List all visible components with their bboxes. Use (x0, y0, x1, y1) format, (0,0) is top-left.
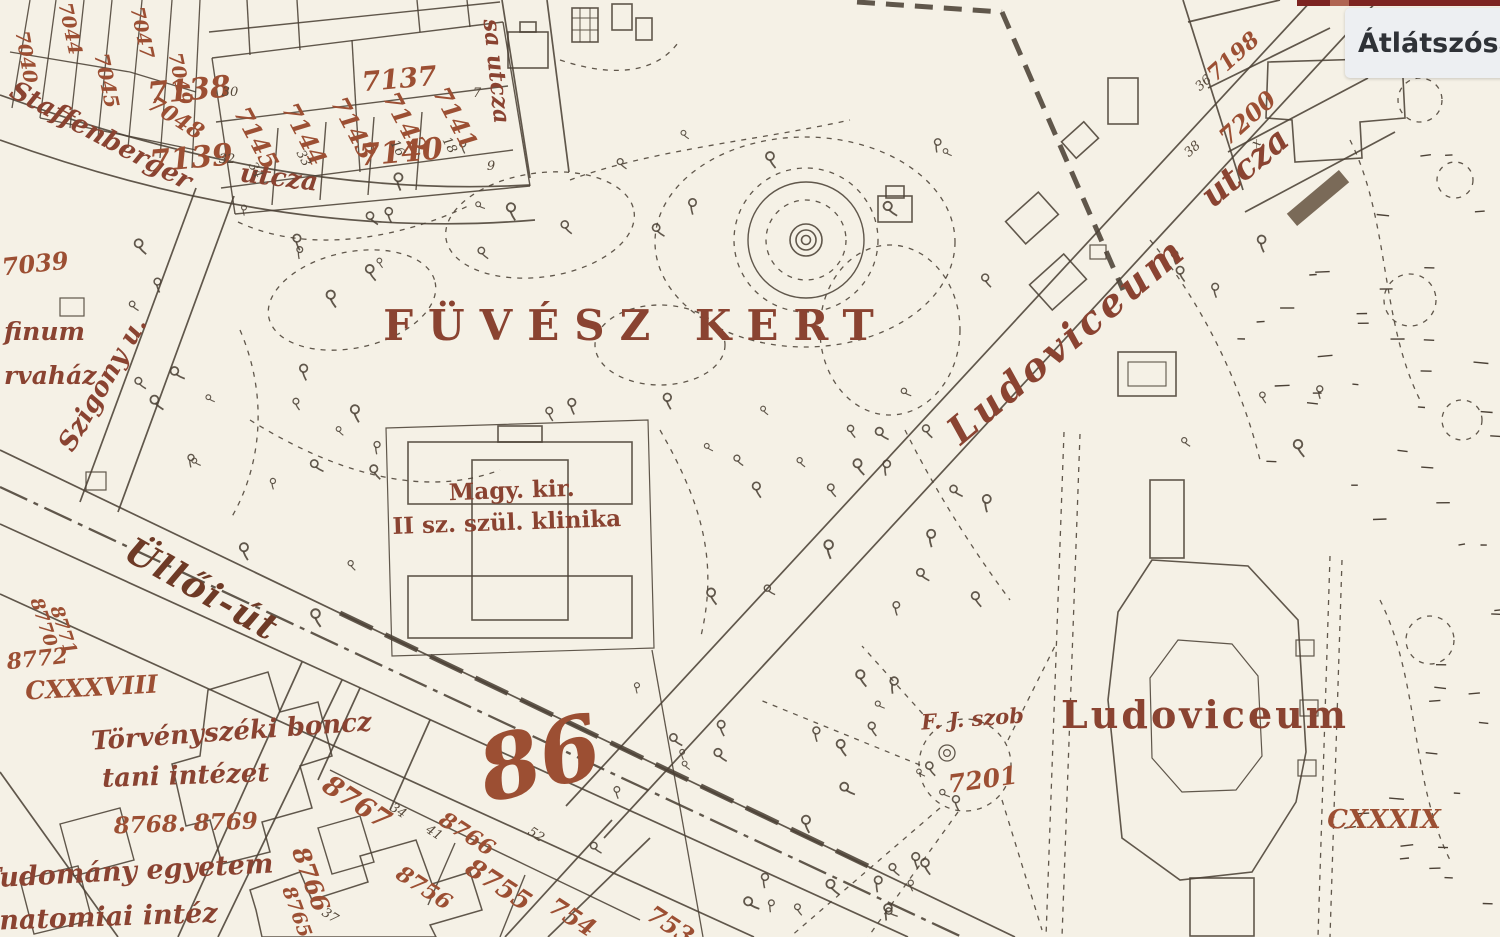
tree-icon (853, 459, 864, 476)
meadow-dash (1400, 858, 1409, 859)
map-canvas[interactable]: FÜVÉSZ KERT Üllői-út Szigony u. Staffenb… (0, 0, 1500, 937)
meadow-dash (1257, 321, 1265, 322)
tree-icon (809, 726, 822, 742)
meadow-dash (1401, 845, 1414, 847)
tree-icon (949, 484, 963, 501)
tree-icon (909, 852, 922, 869)
tree-icon (868, 722, 877, 736)
tree-icon (349, 405, 362, 423)
tree-icon (1181, 437, 1190, 449)
tree-icon (874, 426, 888, 443)
forensic-label-2: tani intézet (102, 758, 270, 794)
meadow-dash (1474, 362, 1489, 363)
tree-icon (971, 592, 981, 607)
tree-icon (169, 365, 185, 383)
tree-icon (129, 300, 139, 313)
tree-icon (205, 393, 215, 404)
parcel-number: 7201 (946, 760, 1019, 798)
tree-icon (978, 494, 994, 513)
tree-icon (826, 879, 839, 897)
tree-icon (885, 676, 901, 694)
tree-icon (883, 200, 898, 219)
transparency-label: Átlátszóság (1358, 28, 1500, 59)
tree-icon (888, 863, 899, 878)
tree-icon (191, 457, 201, 468)
tree-icon (942, 147, 951, 158)
tree-icon (900, 387, 911, 399)
house-number: 38 (1181, 138, 1203, 160)
meadow-dash (1491, 614, 1500, 615)
tree-icon (847, 425, 855, 437)
parcel-number: 8755 (459, 852, 537, 917)
tree-icon (930, 138, 943, 153)
tree-icon (590, 841, 602, 856)
university-label-1: Tudomány egyetem (0, 848, 274, 894)
meadow-dash (1424, 340, 1434, 341)
tree-icon (134, 238, 146, 255)
tree-icon (685, 198, 699, 215)
house-number: 52 (525, 824, 547, 846)
meadow-dash (1377, 215, 1390, 216)
tree-icon (839, 780, 855, 799)
meadow-dash (1352, 384, 1358, 385)
tree-icon (309, 458, 323, 475)
tree-icon (821, 539, 836, 559)
meadow-dash (1475, 211, 1485, 212)
meadow-dash (1494, 609, 1500, 610)
tree-icon (310, 609, 322, 627)
meadow-dash (1420, 155, 1431, 156)
tree-icon (799, 815, 812, 833)
orphanage-label: rvaház (4, 361, 97, 390)
tree-icon (922, 424, 932, 439)
parcel-number: 7047 (126, 5, 159, 61)
tree-icon (391, 172, 405, 190)
tree-icon (1255, 235, 1269, 253)
meadow-dash (1426, 753, 1438, 754)
tree-icon (715, 720, 727, 736)
parcel-number: 7039 (0, 246, 70, 282)
tree-icon (923, 528, 939, 547)
tree-icon (890, 601, 902, 616)
tree-icon (545, 407, 555, 421)
tree-icon (505, 203, 517, 221)
tree-icon (348, 560, 356, 571)
university-label-2: anatomiai intéz (0, 898, 219, 937)
tree-icon (870, 875, 885, 892)
tree-icon (561, 220, 572, 235)
tree-icon (713, 747, 726, 764)
tree-icon (297, 364, 310, 381)
map-viewer: FÜVÉSZ KERT Üllői-út Szigony u. Staffenb… (0, 0, 1500, 937)
klinika-label-1: Magy. kir. (448, 475, 575, 506)
tree-icon (1209, 282, 1221, 297)
meadow-dash (1373, 519, 1387, 520)
tree-icon (733, 454, 743, 467)
garden-title: FÜVÉSZ KERT (383, 299, 889, 350)
meadow-dash (1398, 450, 1408, 451)
tree-icon (766, 152, 776, 168)
tree-icon (916, 567, 930, 584)
meadow-dash (1459, 544, 1466, 545)
tree-icon (795, 904, 802, 916)
tree-icon (662, 393, 674, 409)
parcel-number: 7198 (1202, 27, 1265, 87)
tree-icon (370, 440, 382, 454)
meadow-dash (1418, 407, 1425, 408)
meadow-dash (1275, 385, 1290, 386)
tree-icon (134, 376, 146, 391)
house-number: 32 (219, 152, 236, 167)
tree-icon (680, 130, 688, 141)
parcel-number: 7044 (54, 1, 87, 57)
tree-icon (981, 274, 991, 288)
meadow-dash (1481, 412, 1493, 413)
tree-icon (763, 583, 775, 597)
top-accent-bar (1297, 0, 1500, 6)
meadow-dash (1479, 722, 1488, 723)
tree-icon (565, 398, 578, 415)
tree-icon (1259, 392, 1266, 403)
house-number: 30 (222, 85, 239, 100)
tree-icon (383, 207, 395, 223)
tree-icon (377, 258, 383, 268)
street-ludoviceum: Ludoviceum (937, 227, 1195, 454)
tree-icon (764, 899, 776, 912)
tree-icon (326, 290, 337, 307)
meadow-dash (1490, 436, 1500, 437)
meadow-dash (1318, 355, 1333, 356)
tree-icon (743, 895, 760, 914)
tree-icon (760, 405, 768, 416)
tree-icon (475, 200, 485, 211)
meadow-dash (1434, 687, 1446, 688)
ludoviceum-building-label: Ludoviceum (1061, 692, 1349, 737)
road-marker-86: 86 (467, 693, 612, 824)
meadow-dash (1469, 693, 1480, 694)
meadow-dash (1315, 272, 1330, 273)
parcel-number: 753 (642, 899, 700, 937)
tree-icon (184, 453, 196, 467)
tree-icon (752, 482, 762, 498)
tree-icon (366, 265, 376, 281)
tree-icon (856, 670, 866, 686)
meadow-dash (1429, 700, 1440, 701)
tree-icon (370, 465, 381, 481)
tree-icon (617, 158, 627, 171)
tree-icon (336, 426, 344, 436)
parcel-number: 7040 (10, 29, 41, 85)
tree-icon (707, 588, 717, 604)
tree-icon (874, 700, 884, 712)
tree-icon (1294, 440, 1304, 457)
meadow-dash (1389, 798, 1404, 799)
block-cxxxviii: CXXXVIII (25, 669, 160, 705)
tree-icon (836, 740, 846, 756)
tree-icon (797, 457, 806, 469)
parcel-number: 7045 (89, 51, 124, 110)
jozefinum-label: finum (2, 317, 85, 346)
tree-icon (1313, 385, 1325, 399)
block-cxxxix: CXXXIX (1327, 805, 1442, 835)
tree-icon (669, 732, 683, 749)
klinika-label-2: II sz. szül. klinika (392, 505, 622, 540)
parcel-number: 8756 (390, 860, 456, 916)
tree-icon (366, 211, 378, 227)
meadow-dash (1421, 467, 1433, 468)
tree-icon (268, 478, 278, 490)
tree-icon (477, 246, 488, 260)
tree-icon (827, 484, 835, 497)
meadow-dash (1307, 403, 1318, 404)
transparency-panel[interactable]: Átlátszóság (1345, 8, 1500, 78)
tree-icon (920, 859, 930, 875)
statue-label: F. J. szob (919, 702, 1024, 734)
tree-icon (612, 786, 622, 799)
parcel-number: 8767 (316, 769, 397, 837)
tree-icon (292, 398, 300, 410)
tree-icon (682, 760, 690, 771)
tree-icon (652, 223, 665, 239)
meadow-dash (1309, 275, 1316, 276)
tree-icon (704, 442, 713, 453)
house-number: 7 (473, 86, 482, 101)
parcel-number: 8772 (4, 643, 69, 675)
tree-icon (632, 682, 642, 694)
tree-icon (926, 762, 936, 777)
parcel-number: 8768. 8769 (112, 807, 258, 839)
tree-icon (238, 543, 250, 561)
house-number: 9 (487, 159, 495, 174)
